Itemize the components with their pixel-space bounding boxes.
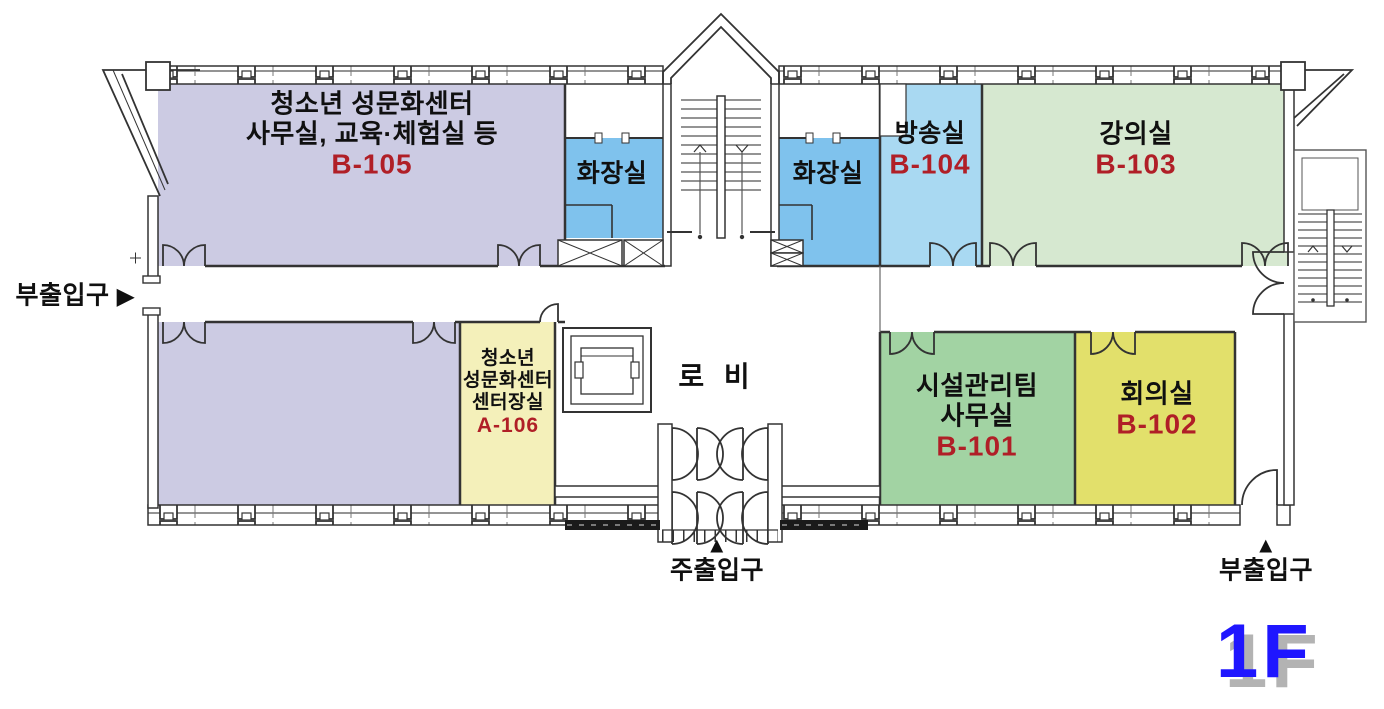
room-b102-number: B-102 [1116,409,1197,441]
right-wall-lower [1284,314,1294,505]
room-b104-name: 방송실 [889,119,970,148]
room-b105-number: B-105 [246,149,498,181]
elevator [563,328,651,412]
lobby-label: 로 비 [678,361,755,393]
room-b103-label: 강의실 B-103 [1095,119,1176,182]
bottom-wall-end [1277,505,1290,525]
floor-badge: 1F [1216,614,1313,690]
main-entrance-label: ▲ 주출입구 [670,535,764,586]
room-b102-label: 회의실 B-102 [1116,379,1197,442]
room-b104-number: B-104 [889,148,970,180]
room-b101-name-line1: 시설관리팀 [916,371,1038,401]
room-b105-name-line1: 청소년 성문화센터 [246,89,498,119]
up-arrow-icon-right: ▲ [1219,535,1313,557]
room-b103-number: B-103 [1095,149,1176,181]
central-staircase [681,96,761,239]
room-a106-name-line3: 센터장실 [463,392,553,414]
top-wall-left [155,66,663,84]
room-b103-name: 강의실 [1095,119,1176,149]
stairwell-gable [663,14,779,84]
side-entrance-left-text: 부출입구 [16,282,110,310]
floor-plan-drawing [0,0,1384,709]
room-toilet-right-label: 화장실 [793,160,864,189]
room-b102-name: 회의실 [1116,379,1197,409]
side-entrance-right-label: ▲ 부출입구 [1219,535,1313,586]
top-wall-right [779,66,1288,84]
left-wall-upper [148,196,158,282]
left-wall-lower [148,312,158,508]
right-wall-upper [1284,84,1294,252]
room-b101-number: B-101 [916,431,1038,463]
room-a106-name-line1: 청소년 [463,348,553,370]
floor-plan-page: 청소년 성문화센터 사무실, 교육·체험실 등 B-105 화장실 화장실 방송… [0,0,1384,709]
room-annex-fill [158,322,460,505]
room-b101-name-line2: 사무실 [916,401,1038,431]
room-a106-label: 청소년 성문화센터 센터장실 A-106 [463,348,553,438]
exterior-staircase [1294,150,1366,322]
room-b105-label: 청소년 성문화센터 사무실, 교육·체험실 등 B-105 [246,89,498,182]
room-toilet-left-label: 화장실 [577,160,648,189]
main-entrance-text: 주출입구 [670,557,764,586]
right-arrow-icon: ▶ [117,284,134,309]
room-a106-number: A-106 [463,414,553,438]
room-b101-label: 시설관리팀 사무실 B-101 [916,371,1038,464]
room-b105-name-line2: 사무실, 교육·체험실 등 [246,119,498,149]
up-arrow-icon-main: ▲ [670,535,764,557]
room-b104-label: 방송실 B-104 [889,119,970,180]
side-entrance-left-label: 부출입구 ▶ [16,282,135,311]
duct-shafts [558,240,803,266]
side-entrance-right-text: 부출입구 [1219,557,1313,586]
room-a106-name-line2: 성문화센터 [463,370,553,392]
